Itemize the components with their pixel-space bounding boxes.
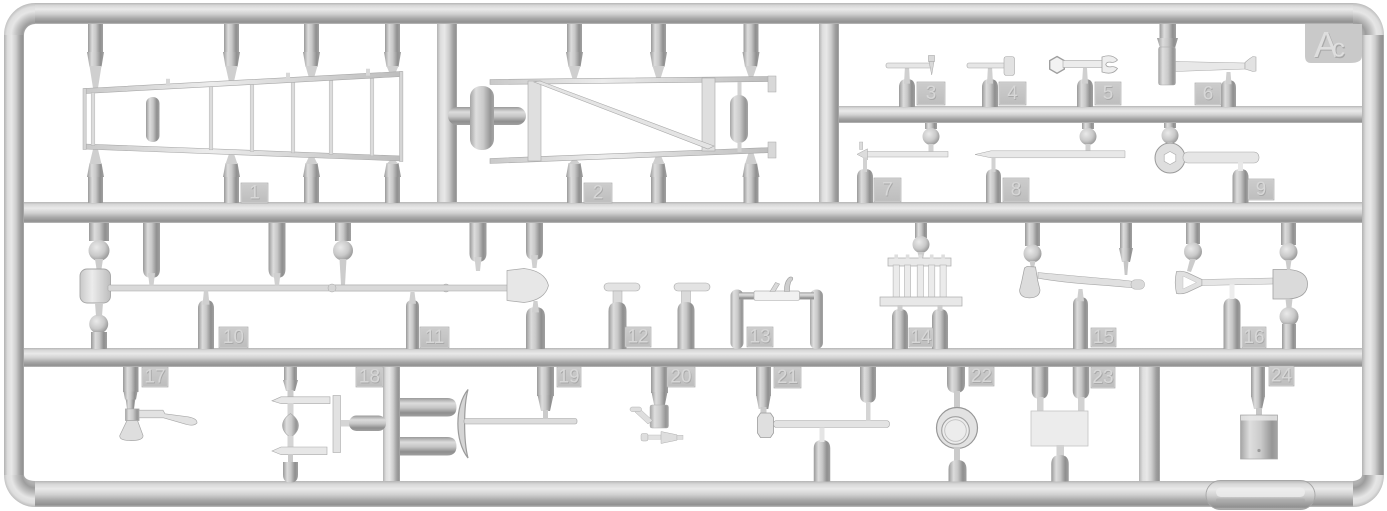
- svg-text:13: 13: [749, 327, 770, 348]
- svg-text:1: 1: [249, 183, 260, 204]
- svg-text:10: 10: [223, 327, 244, 348]
- svg-text:5: 5: [1103, 83, 1114, 104]
- svg-text:7: 7: [882, 180, 893, 201]
- svg-text:21: 21: [777, 367, 798, 388]
- svg-text:16: 16: [1243, 327, 1264, 348]
- svg-text:22: 22: [971, 366, 992, 387]
- svg-text:c: c: [1332, 33, 1345, 63]
- svg-text:19: 19: [558, 367, 579, 388]
- svg-text:23: 23: [1092, 367, 1113, 388]
- svg-text:11: 11: [425, 327, 445, 348]
- svg-text:12: 12: [627, 327, 648, 348]
- svg-text:6: 6: [1203, 84, 1214, 105]
- svg-text:24: 24: [1271, 366, 1293, 387]
- svg-text:18: 18: [359, 367, 380, 388]
- svg-text:14: 14: [910, 327, 932, 348]
- svg-text:20: 20: [670, 367, 691, 388]
- svg-text:2: 2: [593, 183, 604, 204]
- svg-text:8: 8: [1011, 180, 1022, 201]
- svg-text:9: 9: [1256, 179, 1267, 200]
- svg-text:3: 3: [926, 83, 937, 104]
- svg-text:4: 4: [1007, 83, 1018, 104]
- svg-text:17: 17: [144, 367, 165, 388]
- svg-text:15: 15: [1093, 327, 1114, 348]
